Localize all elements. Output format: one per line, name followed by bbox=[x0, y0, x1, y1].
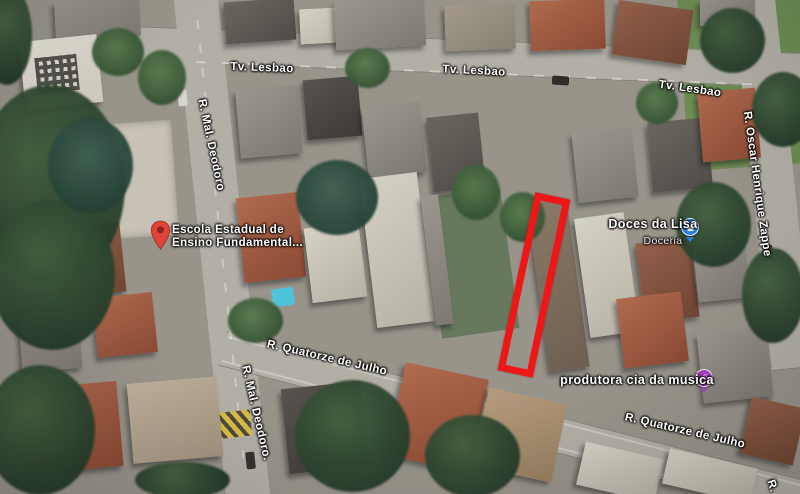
house-roof bbox=[616, 291, 689, 368]
street-label-tv-lesbao: Tv. Lesbao bbox=[442, 63, 506, 78]
house-roof bbox=[235, 85, 303, 158]
car bbox=[552, 76, 569, 86]
house-roof bbox=[739, 397, 800, 466]
tree-canopy bbox=[228, 298, 283, 343]
street-label-tv-lesbao: Tv. Lesbao bbox=[230, 61, 294, 75]
school-label-line2: Ensino Fundamental... bbox=[172, 237, 303, 250]
satellite-map[interactable]: Tv. Lesbao Tv. Lesbao Tv. Lesbao R. Mal.… bbox=[0, 0, 800, 494]
school-label-line1: Escola Estadual de bbox=[172, 224, 303, 237]
car bbox=[245, 452, 256, 470]
house-roof bbox=[127, 376, 224, 464]
tree-canopy bbox=[700, 8, 765, 73]
doces-da-lisa-poi[interactable]: Doces da Lisa Doceria bbox=[615, 216, 715, 250]
school-poi-label[interactable]: Escola Estadual de Ensino Fundamental... bbox=[172, 224, 303, 249]
tree-canopy bbox=[48, 118, 133, 213]
poi-pointer bbox=[686, 237, 694, 242]
tree-canopy bbox=[345, 48, 390, 88]
house-roof bbox=[224, 0, 297, 44]
doces-da-lisa-category: Doceria bbox=[644, 235, 683, 247]
house-roof bbox=[572, 127, 639, 203]
tree-canopy bbox=[425, 415, 520, 494]
tree-canopy bbox=[92, 28, 144, 76]
doces-da-lisa-label[interactable]: Doces da Lisa bbox=[608, 217, 697, 231]
tree-canopy bbox=[138, 50, 186, 105]
house-roof bbox=[444, 4, 516, 51]
poi-pointer bbox=[700, 388, 708, 393]
house-roof bbox=[529, 0, 606, 51]
school-poi[interactable]: Escola Estadual de Ensino Fundamental... bbox=[150, 220, 280, 254]
house-roof bbox=[334, 0, 426, 50]
produtora-label[interactable]: produtora cia da musica bbox=[560, 373, 714, 387]
house-roof bbox=[362, 102, 427, 178]
tree-canopy bbox=[135, 462, 230, 494]
tree-canopy bbox=[296, 160, 378, 235]
produtora-poi[interactable]: produtora cia da musica ♫ bbox=[585, 362, 720, 394]
house-roof bbox=[302, 76, 362, 141]
house-roof bbox=[612, 0, 694, 65]
tree-canopy bbox=[742, 248, 800, 343]
tree-canopy bbox=[452, 165, 500, 220]
tree-canopy bbox=[295, 380, 410, 492]
